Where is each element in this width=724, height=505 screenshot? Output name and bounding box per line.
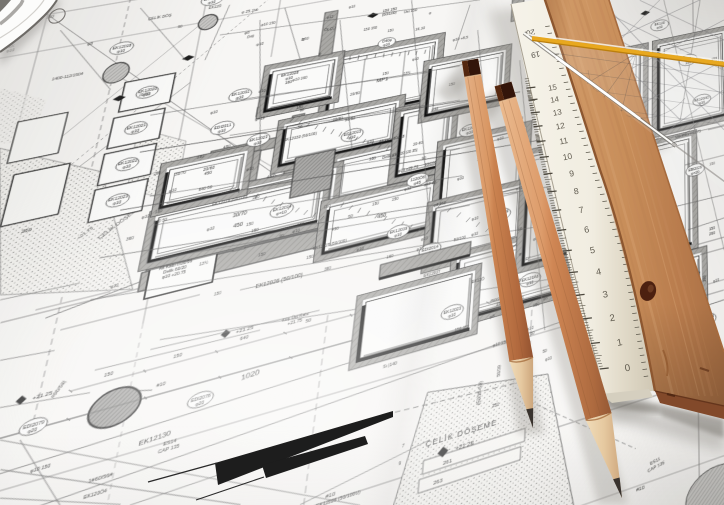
- svg-text:15: 15: [547, 82, 557, 92]
